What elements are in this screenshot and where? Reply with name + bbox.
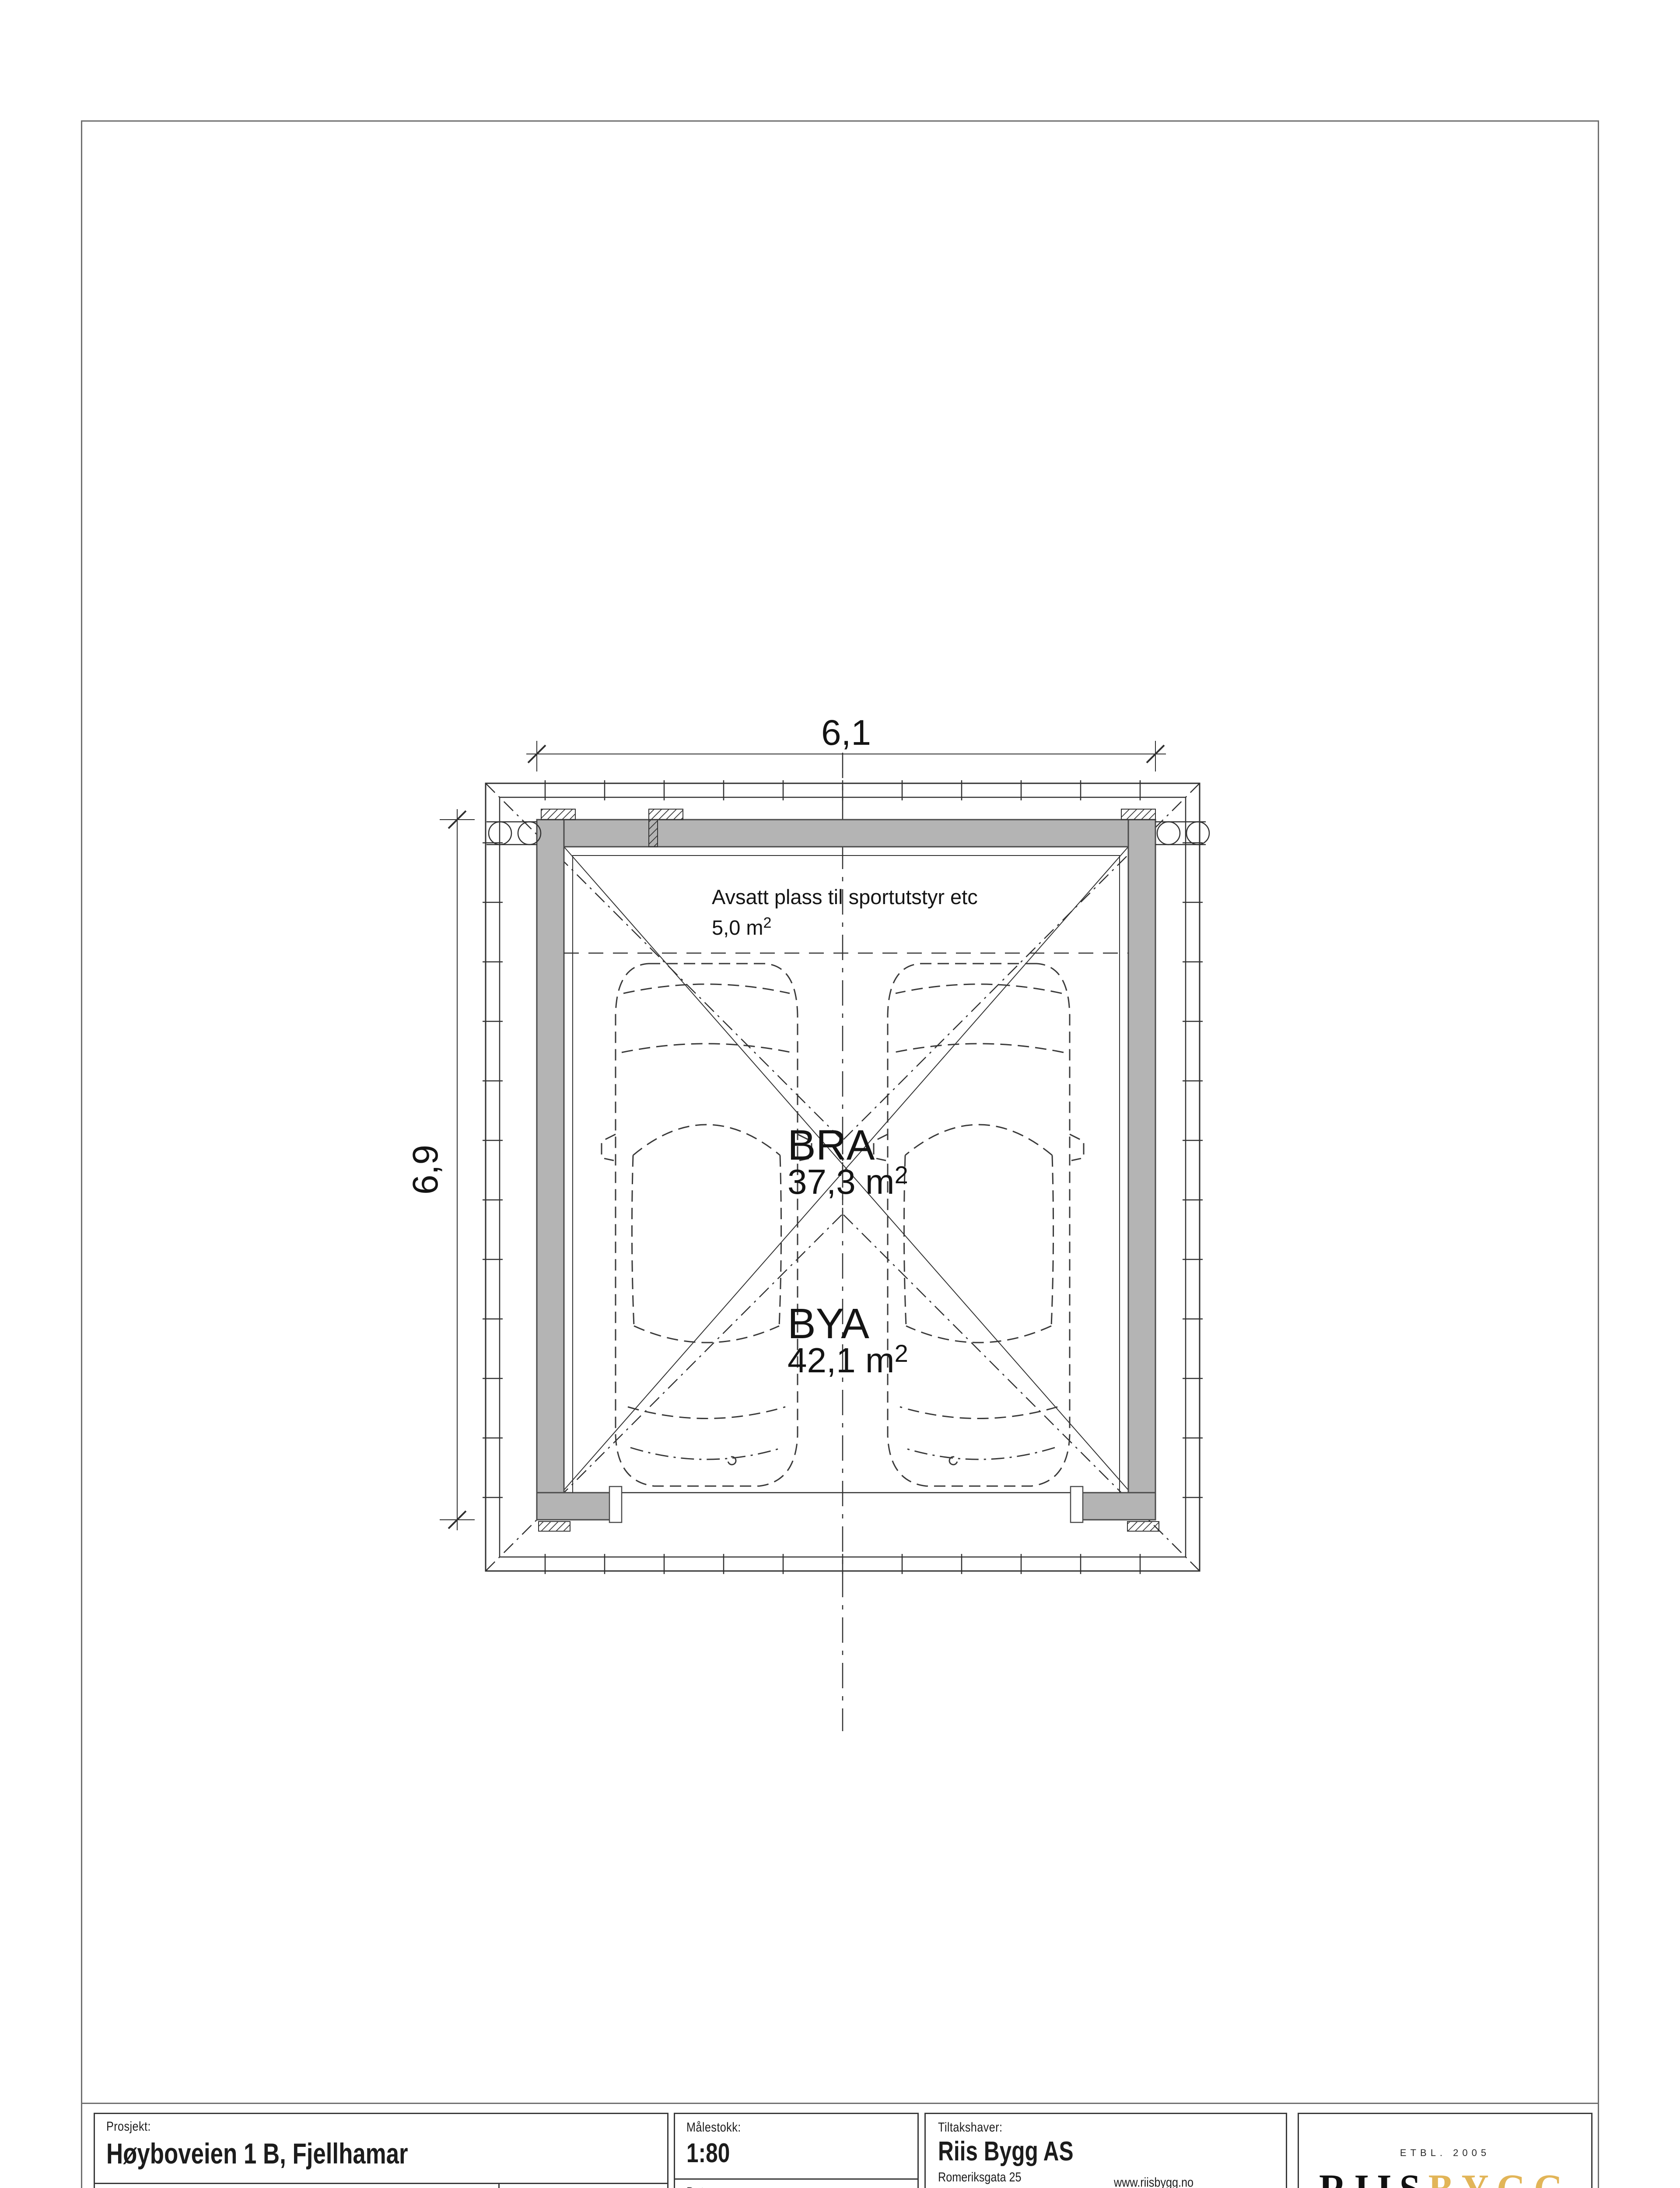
bya-label: BYA [787, 1300, 869, 1347]
tegning-cell: Tegning: Hus 1 - Plantegning garasje [95, 2184, 498, 2188]
dato-label: Dato: [686, 2185, 714, 2188]
project-cell: Prosjekt: Høyboveien 1 B, Fjellhamar [95, 2114, 667, 2184]
malestokk-cell: Målestokk: 1:80 [675, 2114, 917, 2180]
title-block-project: Prosjekt: Høyboveien 1 B, Fjellhamar Teg… [94, 2113, 668, 2188]
tiltakshaver-value: Riis Bygg AS [938, 2136, 1074, 2167]
wall-stub-right [1078, 1493, 1155, 1520]
title-block-scale-date: Målestokk: 1:80 Dato: 20.01.2021 [674, 2113, 919, 2188]
dim-height-text: 6,9 [406, 1145, 445, 1195]
prosjekt-value: Høyboveien 1 B, Fjellhamar [106, 2137, 555, 2170]
owner-website: www.riisbygg.no [1114, 2175, 1193, 2188]
storage-note-text: Avsatt plass til sportutstyr etc [712, 885, 978, 908]
tegningsnr-cell: Tegningsnr.: HBV-104 [498, 2184, 667, 2188]
title-block-logo: ETBL. 2005 RIISBYGG [1298, 2113, 1592, 2188]
dim-width-text: 6,1 [821, 713, 871, 753]
logo-bygg-text: BYGG [1428, 2166, 1571, 2188]
logo-riis-text: RIIS [1319, 2166, 1428, 2188]
title-block-owner: Tiltakshaver: Riis Bygg AS Romeriksgata … [924, 2113, 1287, 2188]
riisbygg-logo: ETBL. 2005 RIISBYGG [1299, 2114, 1591, 2188]
car-left [602, 964, 812, 1486]
dimension-height: 6,9 [406, 809, 475, 1530]
dato-cell: Dato: 20.01.2021 [675, 2180, 917, 2188]
prosjekt-label: Prosjekt: [106, 2119, 151, 2134]
logo-wordmark: RIISBYGG [1319, 2165, 1571, 2188]
wall-stub-left [537, 1493, 615, 1520]
garage-floor-plan: 6,1 6,9 Avsatt plass til sportutstyr etc… [394, 678, 1312, 1772]
tiltakshaver-label: Tiltakshaver: [938, 2120, 1002, 2135]
bra-value: 37,3 m2 [787, 1161, 908, 1201]
logo-etbl-text: ETBL. 2005 [1400, 2147, 1490, 2159]
malestokk-label: Målestokk: [686, 2120, 741, 2135]
drawing-frame-bottom-line [81, 2103, 1599, 2104]
car-right [874, 964, 1084, 1486]
bra-label: BRA [787, 1121, 875, 1169]
door-jambs [609, 1487, 1083, 1522]
malestokk-value: 1:80 [686, 2138, 871, 2169]
bya-value: 42,1 m2 [787, 1339, 908, 1380]
owner-address-line1: Romeriksgata 25 [938, 2170, 1021, 2185]
dimension-width: 6,1 [526, 713, 1166, 771]
storage-area-text: 5,0 m2 [712, 915, 771, 939]
